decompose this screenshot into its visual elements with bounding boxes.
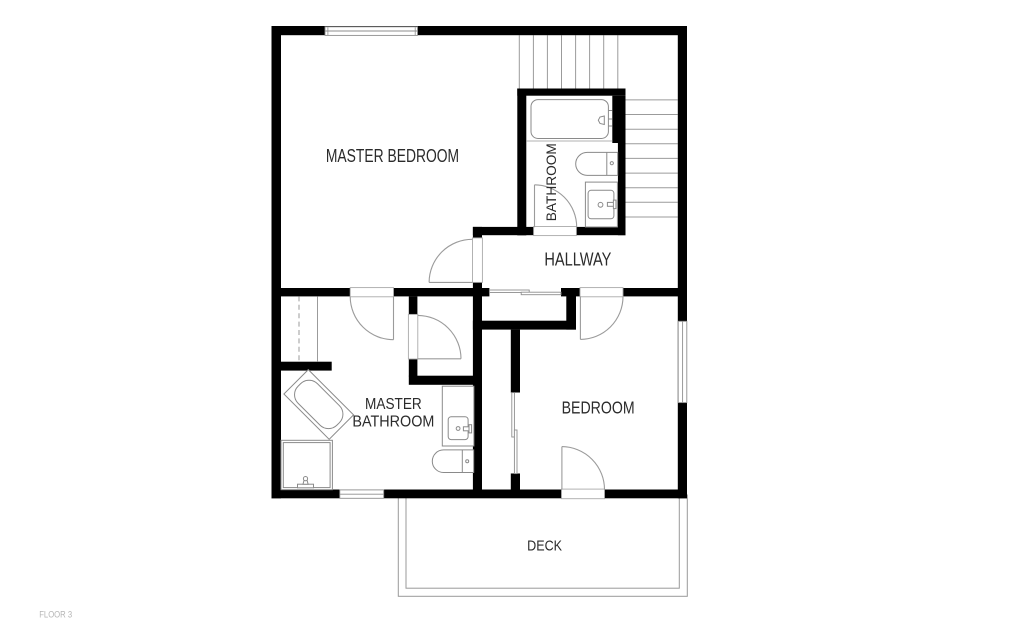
svg-text:HALLWAY: HALLWAY: [544, 250, 611, 270]
svg-text:BATHROOM: BATHROOM: [544, 143, 559, 221]
svg-text:MASTER BEDROOM: MASTER BEDROOM: [326, 146, 459, 166]
svg-text:FLOOR 3: FLOOR 3: [39, 610, 72, 620]
svg-text:DECK: DECK: [527, 537, 562, 554]
svg-text:MASTER: MASTER: [365, 396, 422, 413]
svg-text:BEDROOM: BEDROOM: [562, 398, 635, 418]
svg-text:BATHROOM: BATHROOM: [352, 414, 434, 431]
